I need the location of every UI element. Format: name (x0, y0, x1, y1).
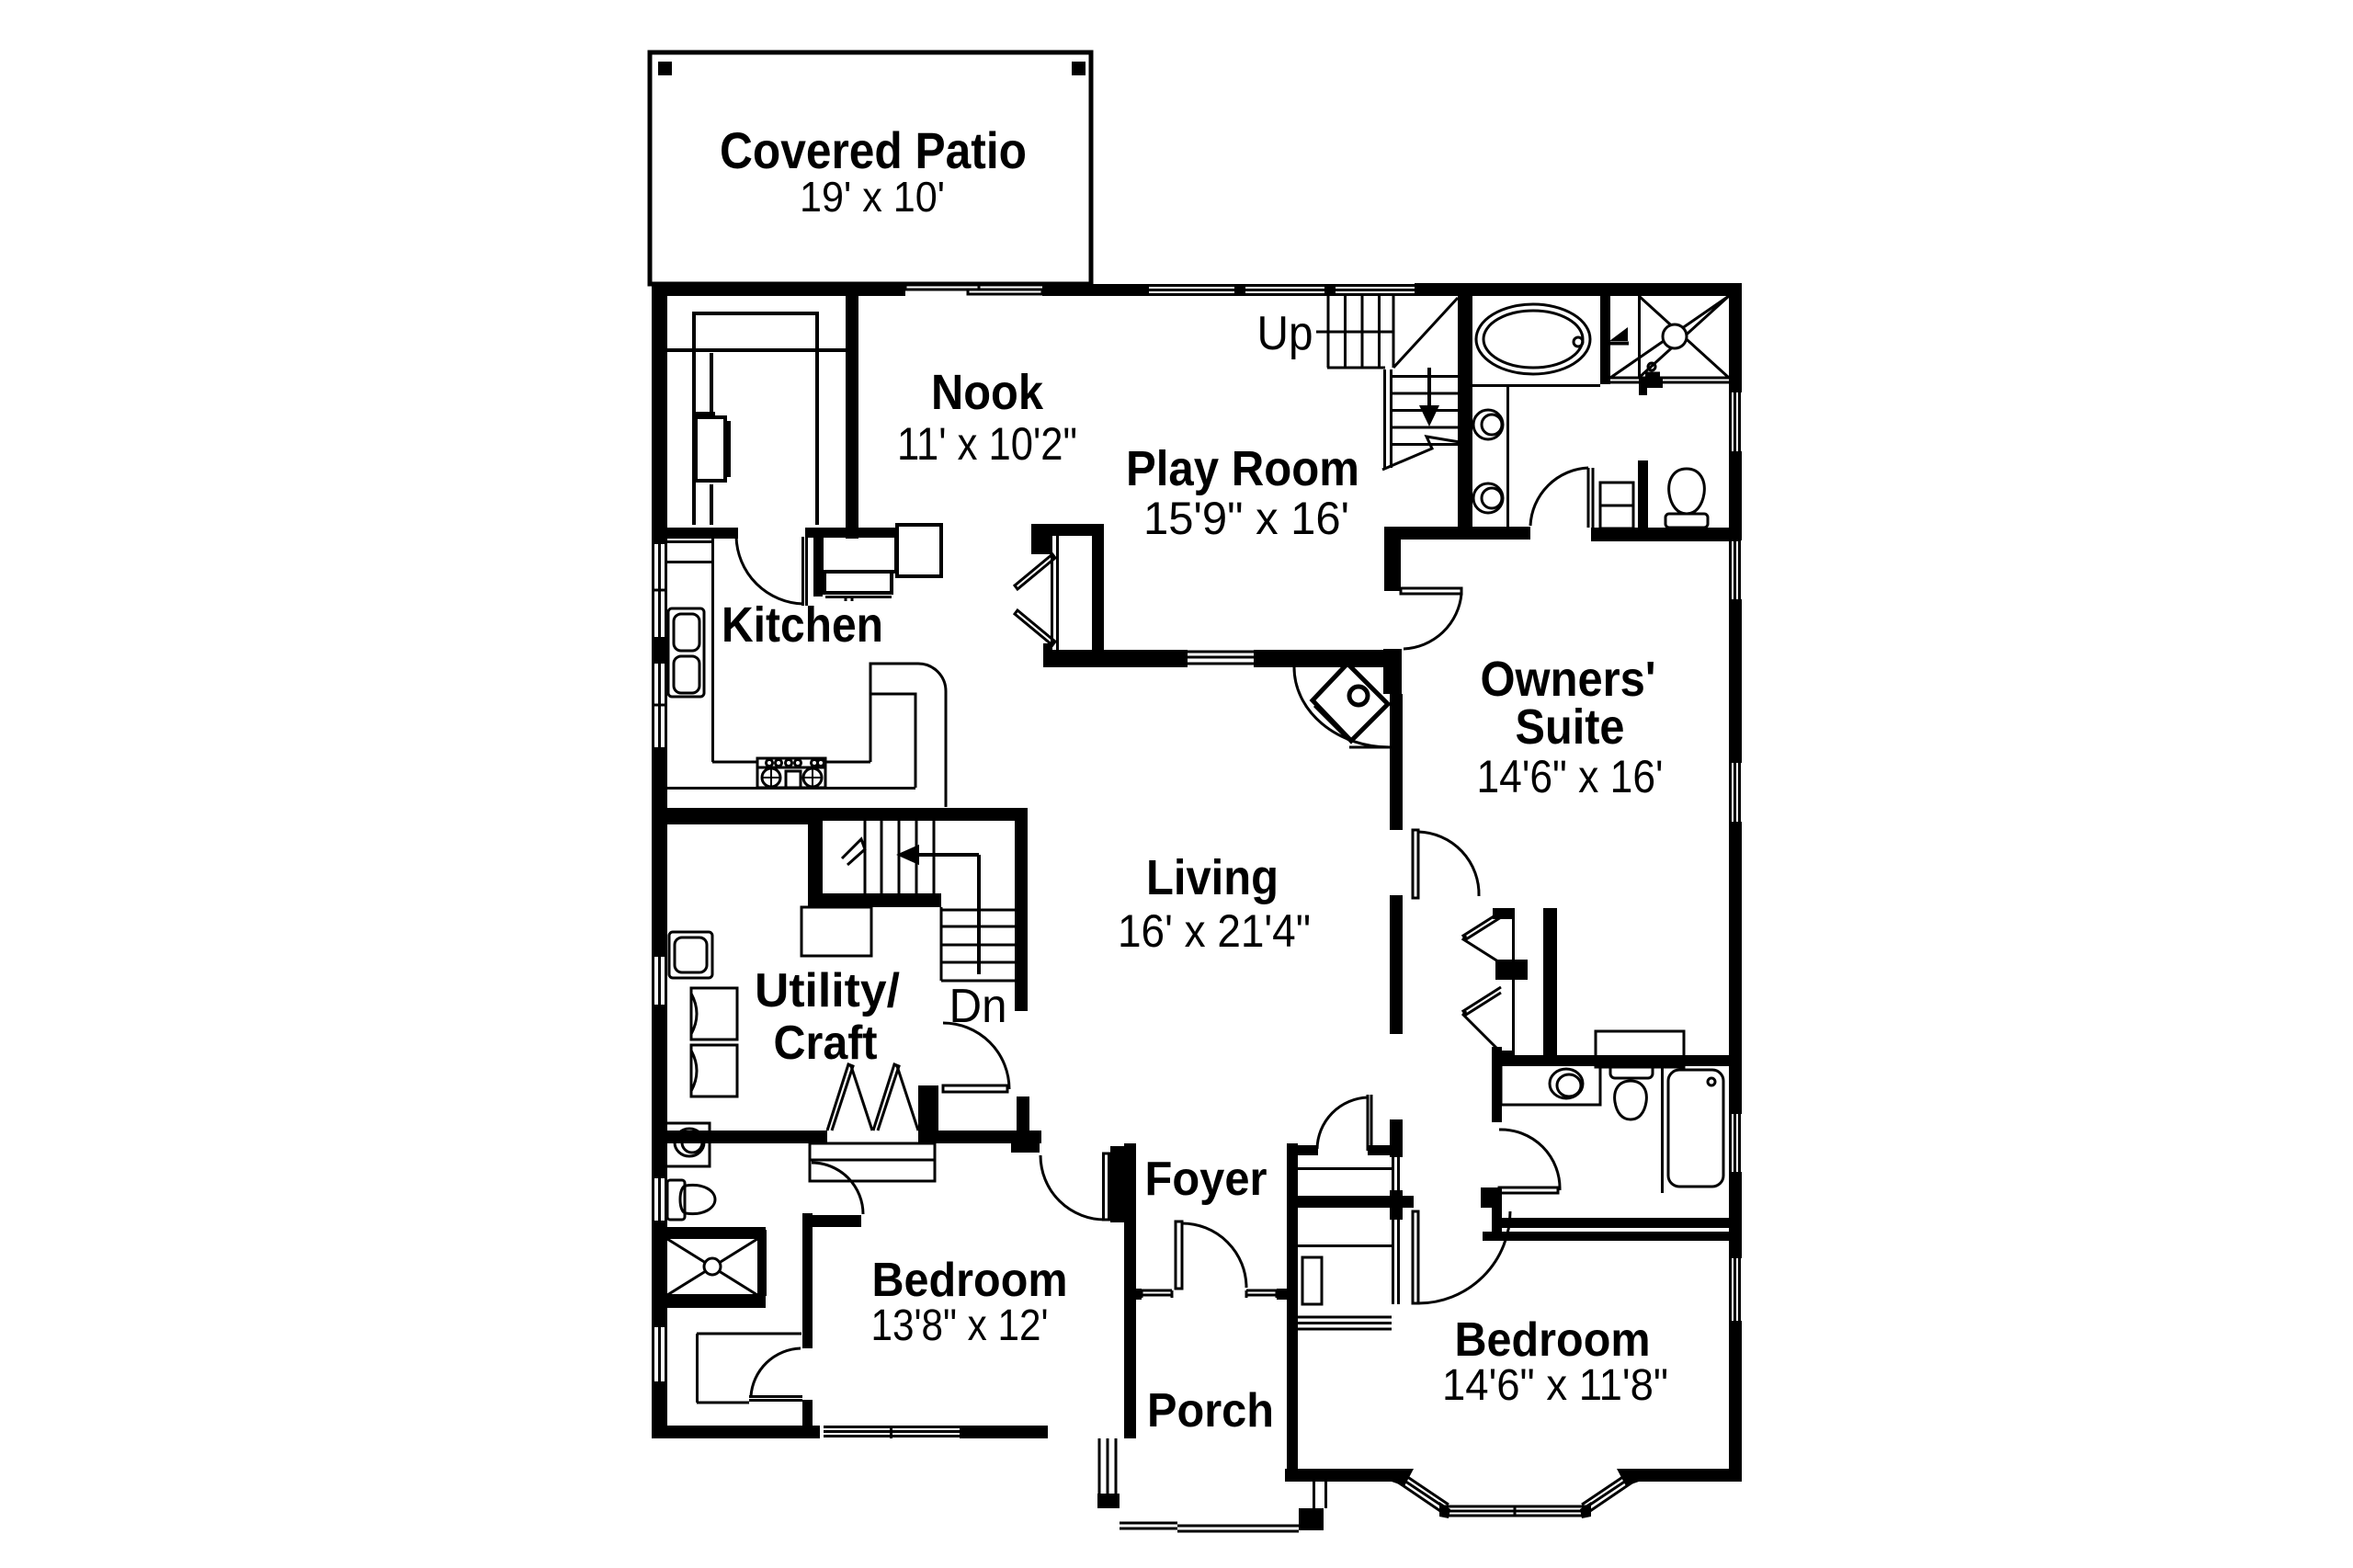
svg-text:13'8" x 12': 13'8" x 12' (871, 1301, 1049, 1350)
svg-text:15'9" x 16': 15'9" x 16' (1143, 493, 1349, 544)
svg-text:Living: Living (1146, 850, 1279, 905)
svg-text:Utility/: Utility/ (755, 964, 900, 1017)
svg-text:Covered Patio: Covered Patio (720, 121, 1027, 179)
svg-text:Dn: Dn (949, 980, 1007, 1033)
svg-text:Craft: Craft (774, 1017, 878, 1070)
svg-text:14'6" x 16': 14'6" x 16' (1477, 751, 1664, 802)
svg-text:Bedroom: Bedroom (1455, 1313, 1651, 1367)
svg-text:Play Room: Play Room (1126, 441, 1359, 496)
svg-text:14'6" x 11'8": 14'6" x 11'8" (1442, 1361, 1668, 1410)
svg-text:19' x 10': 19' x 10' (800, 173, 945, 221)
svg-text:Owners': Owners' (1481, 652, 1656, 707)
svg-text:Suite: Suite (1516, 699, 1625, 755)
svg-text:11' x 10'2": 11' x 10'2" (897, 418, 1077, 470)
svg-text:Bedroom: Bedroom (872, 1254, 1068, 1307)
svg-text:Nook: Nook (931, 365, 1044, 420)
svg-text:16' x 21'4": 16' x 21'4" (1118, 905, 1311, 957)
svg-text:Up: Up (1257, 307, 1313, 360)
svg-text:Kitchen: Kitchen (722, 597, 883, 653)
svg-text:Porch: Porch (1147, 1384, 1274, 1437)
svg-text:Foyer: Foyer (1145, 1153, 1267, 1206)
